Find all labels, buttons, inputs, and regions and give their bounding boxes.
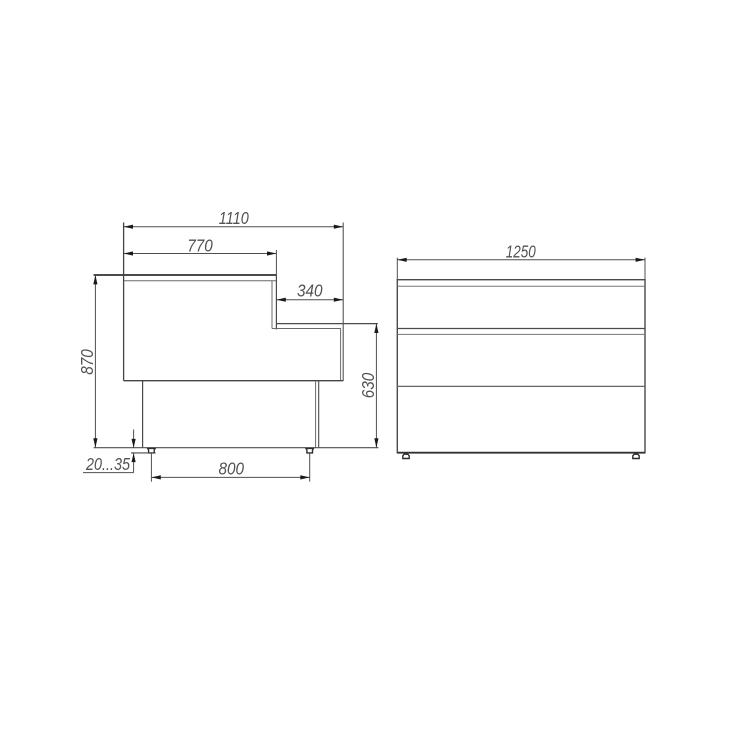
svg-text:20...35: 20...35 [85,454,130,474]
svg-text:800: 800 [219,459,245,479]
svg-text:770: 770 [187,235,213,255]
svg-text:340: 340 [297,280,323,300]
svg-text:1250: 1250 [506,241,536,261]
svg-text:870: 870 [77,349,97,375]
svg-text:630: 630 [358,373,378,399]
svg-text:1110: 1110 [219,208,249,228]
